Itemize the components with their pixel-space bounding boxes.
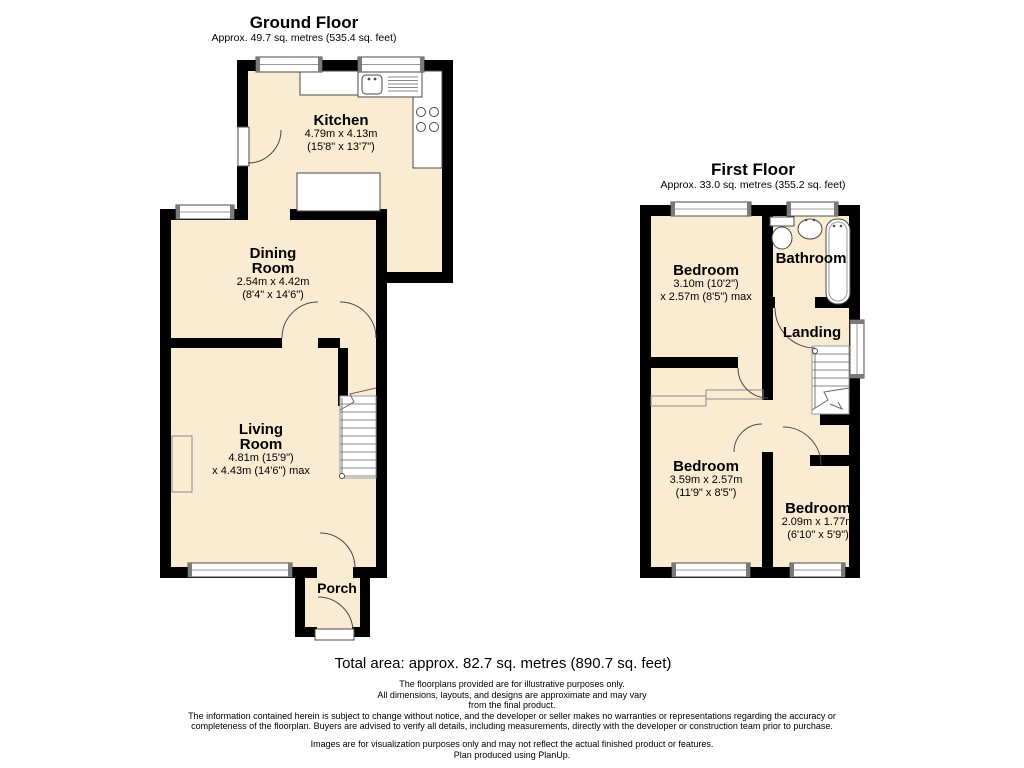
bedroom1-label: Bedroom 3.10m (10'2") x 2.57m (8'5") max [660, 263, 752, 304]
disclaimer-line: The information contained herein is subj… [188, 711, 836, 722]
porch-label: Porch [317, 581, 357, 596]
kitchen-sink-icon [358, 71, 422, 97]
dining-room-label: Dining Room 2.54m x 4.42m (8'4" x 14'6") [237, 246, 310, 302]
door-leaf [238, 127, 249, 166]
bedroom2-label: Bedroom 3.59m x 2.57m (11'9" x 8'5") [670, 459, 743, 500]
room-name: Room [212, 437, 310, 452]
room-dim-imperial: (11'9" x 8'5") [670, 487, 743, 500]
room-name: Living [212, 422, 310, 437]
front-door-threshold [315, 629, 354, 640]
disclaimer-line: All dimensions, layouts, and designs are… [377, 690, 646, 701]
bedroom3-label: Bedroom 2.09m x 1.77m (6'10" x 5'9") [782, 501, 855, 542]
room-dim-imperial: (15'8" x 13'7") [305, 141, 378, 154]
room-name: Room [237, 261, 310, 276]
landing-label: Landing [783, 325, 841, 340]
window [188, 563, 292, 577]
disclaimer-line: The floorplans provided are for illustra… [399, 679, 624, 690]
first-floor-title: First Floor [711, 160, 795, 180]
window [790, 563, 845, 577]
floorplan-graphic [0, 0, 1024, 768]
window [176, 205, 234, 219]
window [850, 320, 864, 378]
produced-by-text: Plan produced using PlanUp. [454, 750, 571, 761]
ground-floor-title: Ground Floor [250, 13, 359, 33]
visualization-note: Images are for visualization purposes on… [311, 739, 714, 750]
toilet-icon [770, 217, 794, 249]
room-name: Kitchen [305, 113, 378, 128]
sink-icon [798, 219, 822, 239]
window [787, 202, 838, 216]
room-dim-imperial: x 4.43m (14'6") max [212, 465, 310, 478]
ground-floor-stairs [340, 388, 377, 479]
kitchen-label: Kitchen 4.79m x 4.13m (15'8" x 13'7") [305, 113, 378, 154]
disclaimer-line: from the final product. [468, 700, 555, 711]
window [256, 57, 322, 72]
room-dim-metric: 4.79m x 4.13m [305, 128, 378, 141]
first-floor-stairs [812, 346, 849, 414]
ground-floor-subtitle: Approx. 49.7 sq. metres (535.4 sq. feet) [211, 32, 396, 44]
room-dim-metric: 4.81m (15'9") [212, 452, 310, 465]
room-dim-metric: 3.59m x 2.57m [670, 474, 743, 487]
room-name: Bedroom [670, 459, 743, 474]
room-dim-metric: 2.54m x 4.42m [237, 276, 310, 289]
room-name: Dining [237, 246, 310, 261]
floorplan-page: Ground Floor Approx. 49.7 sq. metres (53… [0, 0, 1024, 768]
room-name: Bedroom [660, 263, 752, 278]
room-dim-metric: 2.09m x 1.77m [782, 516, 855, 529]
living-room-label: Living Room 4.81m (15'9") x 4.43m (14'6"… [212, 422, 310, 478]
window [358, 57, 424, 72]
room-name: Bedroom [782, 501, 855, 516]
room-dim-imperial: (6'10" x 5'9") [782, 529, 855, 542]
room-dim-imperial: (8'4" x 14'6") [237, 289, 310, 302]
room-dim-imperial: x 2.57m (8'5") max [660, 291, 752, 304]
bathroom-label: Bathroom [776, 251, 847, 266]
window [672, 563, 750, 577]
first-floor-subtitle: Approx. 33.0 sq. metres (355.2 sq. feet) [660, 179, 845, 191]
disclaimer-line: completeness of the floorplan. Buyers ar… [191, 721, 833, 732]
window [671, 202, 751, 216]
total-area-text: Total area: approx. 82.7 sq. metres (890… [335, 655, 672, 672]
room-dim-metric: 3.10m (10'2") [660, 278, 752, 291]
